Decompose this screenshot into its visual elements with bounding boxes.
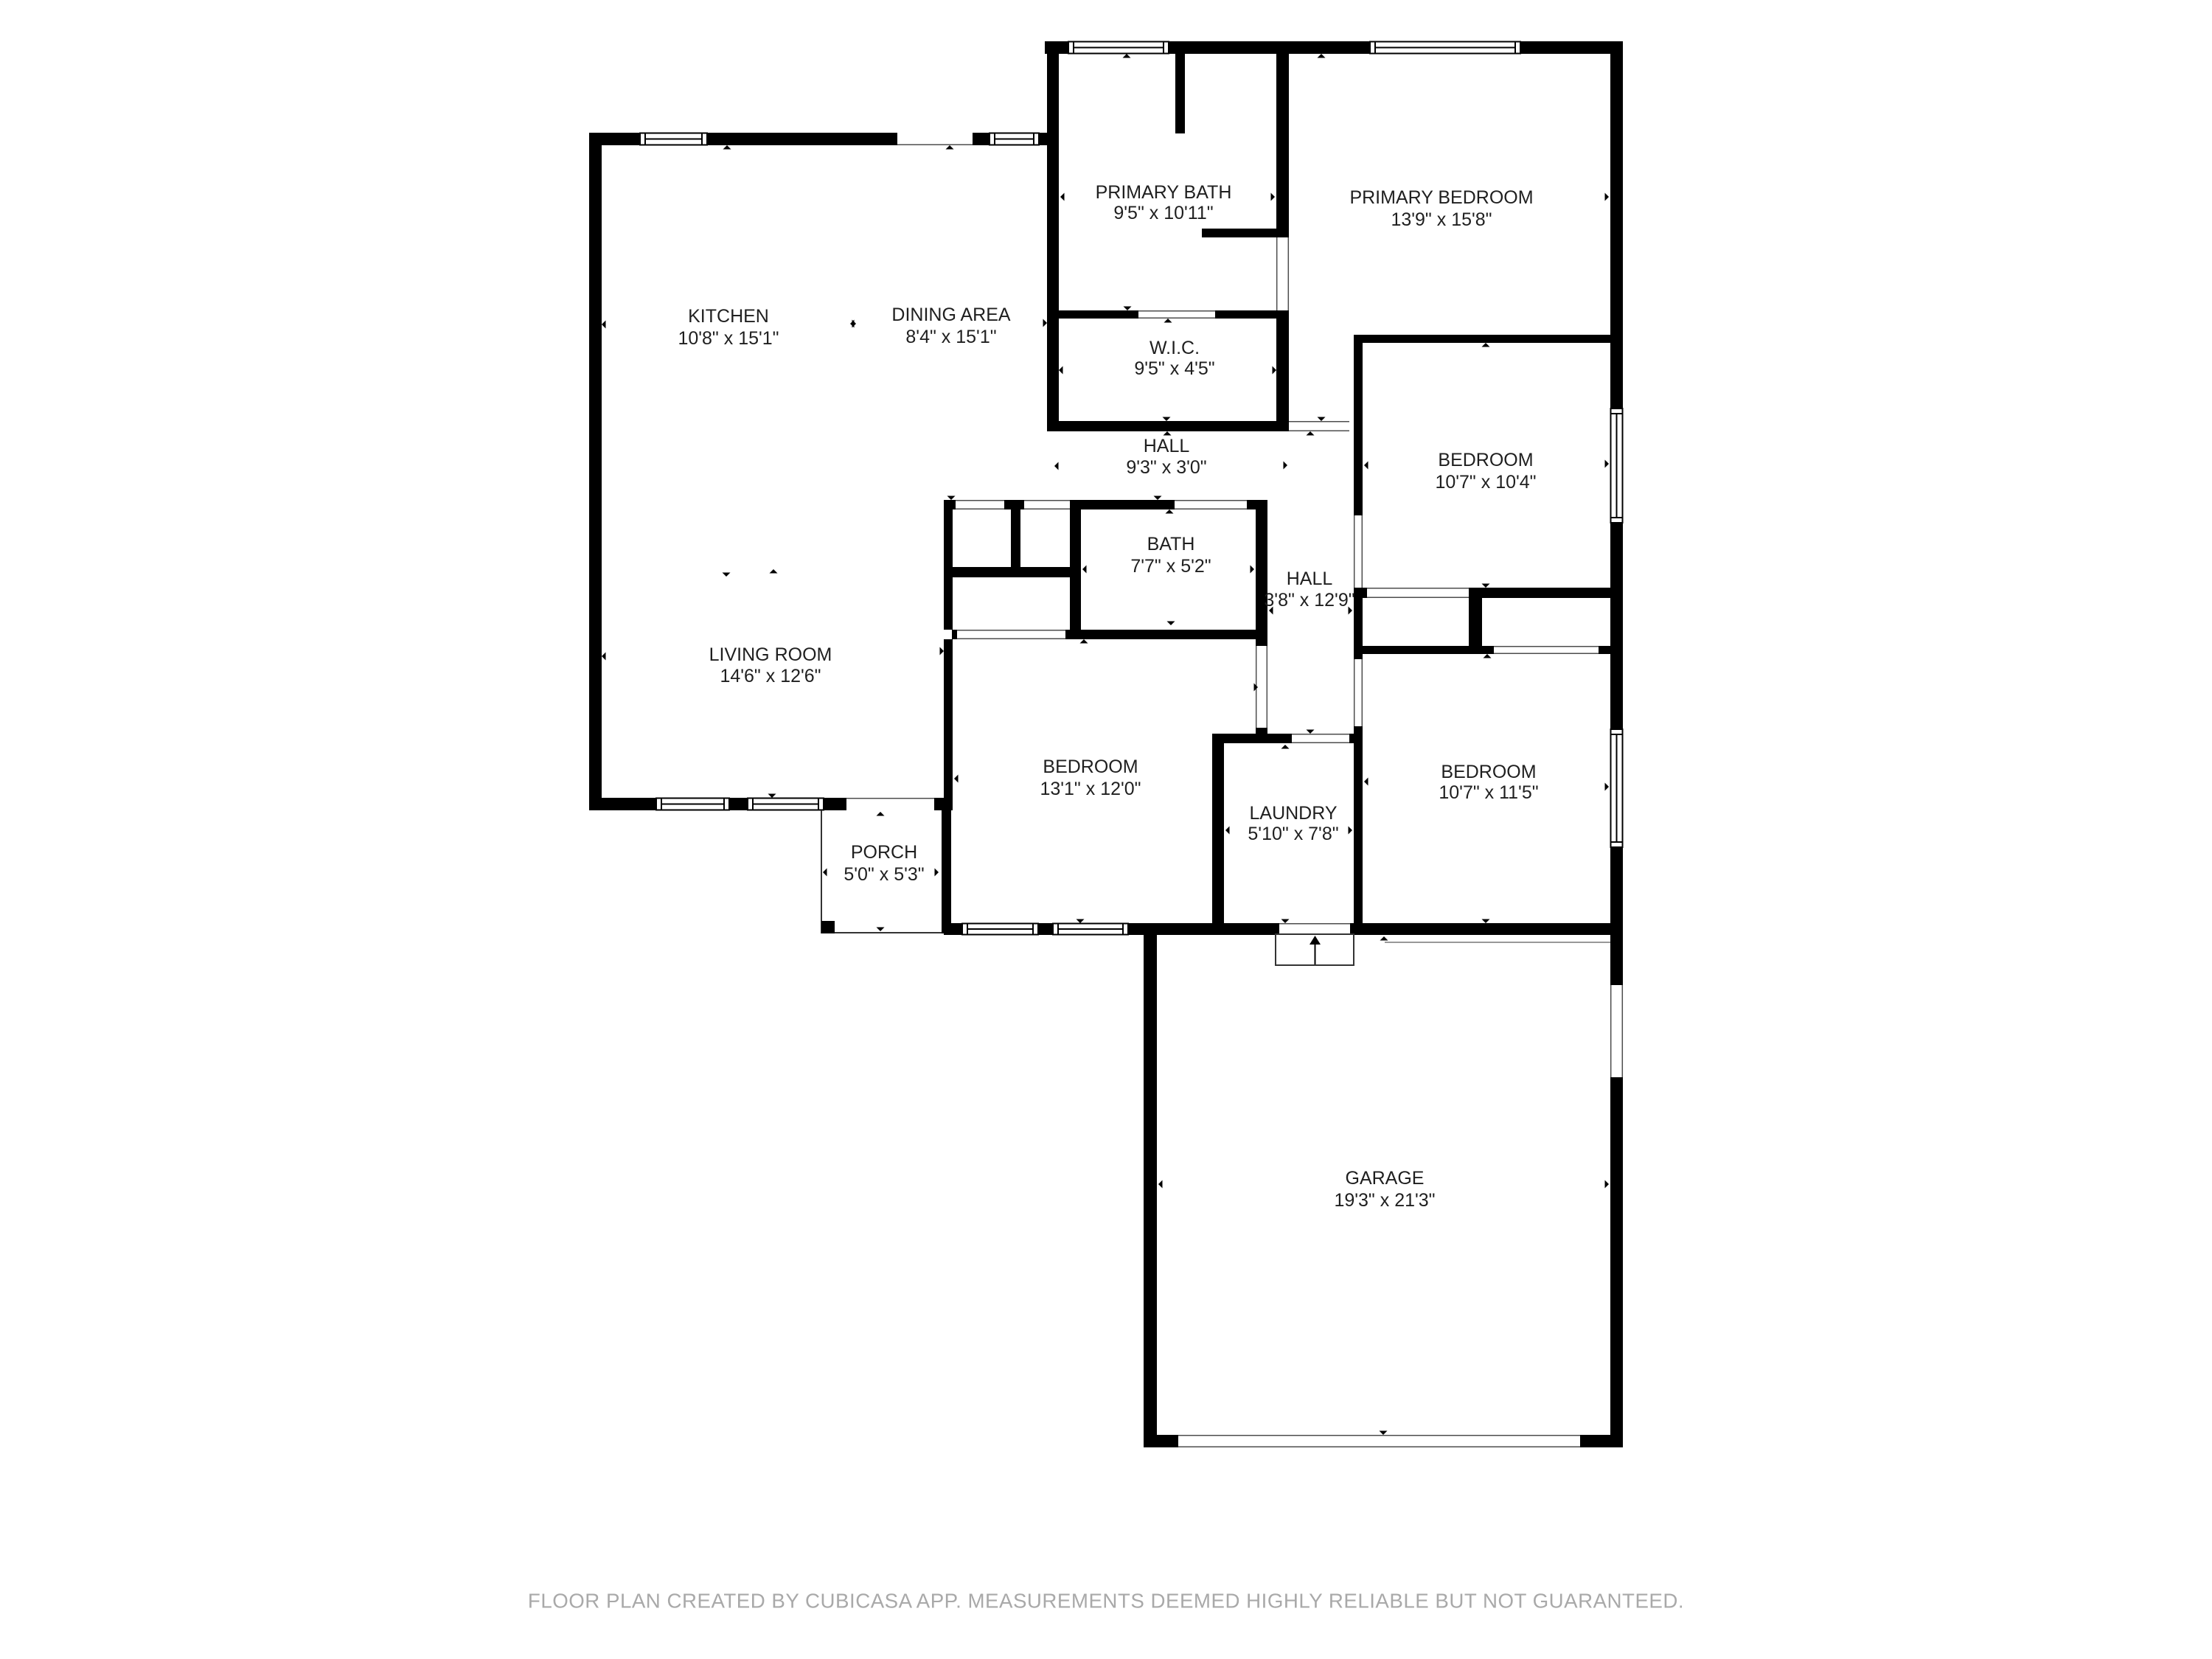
svg-text:9'3" x 3'0": 9'3" x 3'0" (1126, 457, 1206, 478)
svg-text:19'3" x 21'3": 19'3" x 21'3" (1334, 1190, 1435, 1211)
svg-text:BEDROOM: BEDROOM (1438, 450, 1533, 470)
svg-text:13'9" x 15'8": 13'9" x 15'8" (1391, 209, 1492, 230)
svg-text:9'5" x 4'5": 9'5" x 4'5" (1134, 358, 1214, 379)
svg-text:HALL: HALL (1287, 568, 1333, 589)
svg-text:5'10" x 7'8": 5'10" x 7'8" (1248, 824, 1338, 844)
svg-text:8'4" x 15'1": 8'4" x 15'1" (905, 327, 996, 347)
svg-text:10'7" x 10'4": 10'7" x 10'4" (1435, 472, 1536, 493)
svg-text:3'8" x 12'9": 3'8" x 12'9" (1264, 590, 1354, 611)
svg-text:KITCHEN: KITCHEN (688, 306, 769, 327)
svg-text:LIVING ROOM: LIVING ROOM (709, 644, 832, 665)
svg-text:BEDROOM: BEDROOM (1043, 757, 1138, 777)
svg-text:13'1" x 12'0": 13'1" x 12'0" (1040, 779, 1141, 799)
svg-text:10'7" x 11'5": 10'7" x 11'5" (1439, 782, 1538, 803)
svg-text:14'6" x 12'6": 14'6" x 12'6" (720, 666, 821, 686)
svg-text:GARAGE: GARAGE (1346, 1168, 1425, 1189)
svg-text:PRIMARY BATH: PRIMARY BATH (1096, 182, 1232, 203)
svg-text:PRIMARY BEDROOM: PRIMARY BEDROOM (1349, 187, 1533, 208)
svg-text:9'5" x 10'11": 9'5" x 10'11" (1113, 203, 1213, 223)
svg-text:PORCH: PORCH (851, 842, 917, 863)
svg-text:LAUNDRY: LAUNDRY (1249, 803, 1337, 824)
svg-text:BATH: BATH (1147, 534, 1195, 554)
svg-text:DINING AREA: DINING AREA (891, 305, 1010, 325)
svg-text:5'0" x 5'3": 5'0" x 5'3" (844, 864, 924, 885)
svg-text:W.I.C.: W.I.C. (1150, 338, 1200, 358)
svg-text:FLOOR PLAN CREATED BY CUBICASA: FLOOR PLAN CREATED BY CUBICASA APP. MEAS… (528, 1590, 1684, 1613)
svg-text:10'8" x 15'1": 10'8" x 15'1" (678, 328, 779, 349)
svg-text:7'7" x 5'2": 7'7" x 5'2" (1130, 556, 1211, 577)
svg-text:BEDROOM: BEDROOM (1441, 762, 1536, 782)
svg-text:HALL: HALL (1144, 436, 1190, 456)
